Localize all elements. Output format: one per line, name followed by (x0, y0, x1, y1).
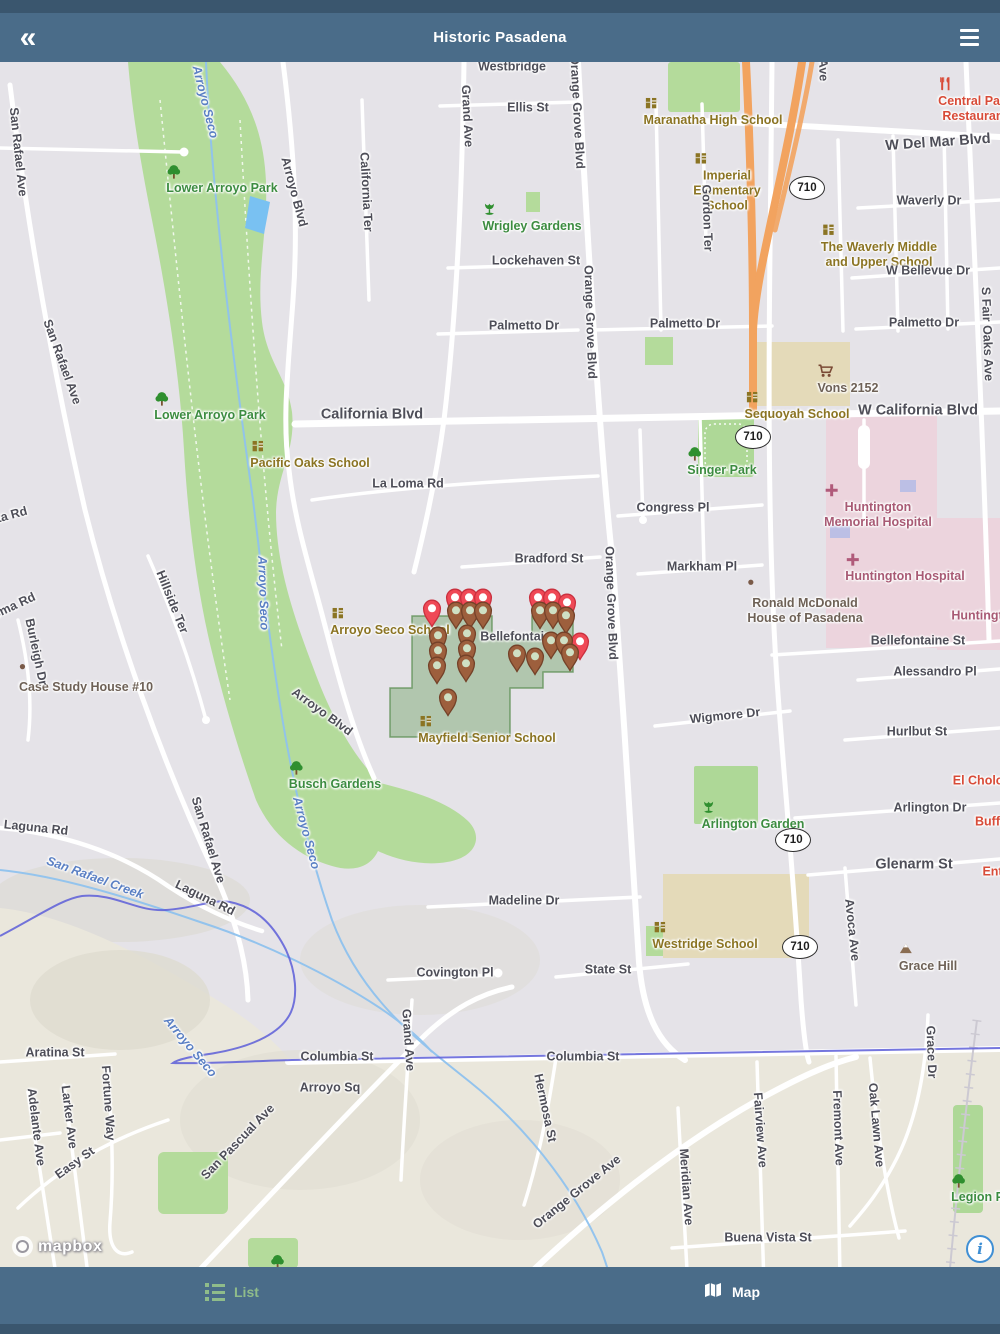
mapbox-wordmark: mapbox (38, 1238, 102, 1256)
back-button[interactable]: « (8, 13, 48, 62)
route-shield-710: 710 (789, 176, 825, 200)
map-base-layer (0, 0, 1000, 1334)
map-pin-brown[interactable] (454, 652, 478, 683)
mapbox-logo-icon (12, 1236, 33, 1257)
list-icon (205, 1283, 225, 1301)
page-title: Historic Pasadena (433, 29, 566, 46)
route-shield-710: 710 (782, 935, 818, 959)
map-pin-brown[interactable] (558, 641, 582, 672)
tab-list[interactable]: List (205, 1275, 259, 1309)
info-button[interactable]: i (966, 1235, 994, 1263)
map-pin-brown[interactable] (523, 645, 547, 676)
tab-list-label: List (234, 1284, 259, 1300)
info-icon: i (977, 1240, 983, 1258)
status-bar (0, 0, 1000, 13)
route-shield-710: 710 (735, 425, 771, 449)
double-chevron-left-icon: « (20, 23, 37, 53)
route-shield-710: 710 (775, 828, 811, 852)
tab-map[interactable]: Map (703, 1275, 760, 1309)
map-pin-brown[interactable] (436, 686, 460, 717)
menu-button[interactable] (952, 13, 986, 62)
map-icon (703, 1280, 723, 1305)
map-canvas[interactable]: WestbridgeSan Rafael AveSan Rafael AveAr… (0, 0, 1000, 1334)
mapbox-attribution[interactable]: mapbox (12, 1236, 102, 1257)
map-pin-brown[interactable] (425, 654, 449, 685)
bottom-tab-bar: List Map (0, 1267, 1000, 1334)
tab-map-label: Map (732, 1284, 760, 1300)
top-navigation-bar: « Historic Pasadena (0, 13, 1000, 62)
hamburger-icon (960, 29, 979, 32)
